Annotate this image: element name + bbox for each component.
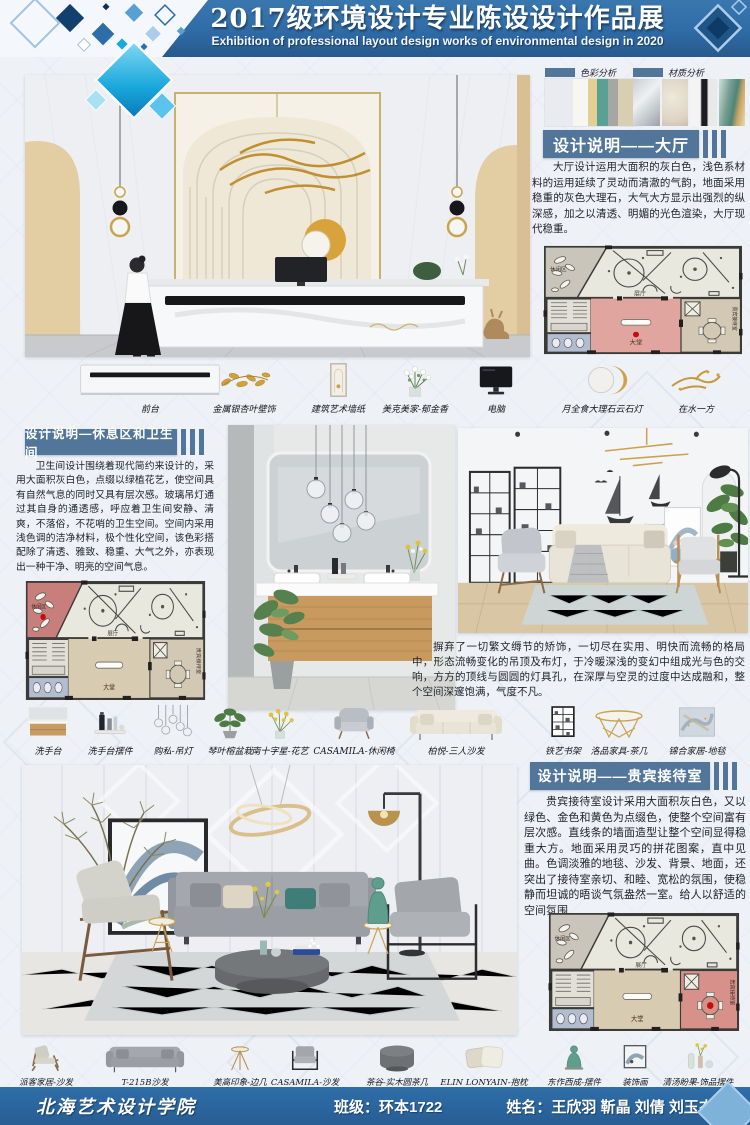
banner-bars: [714, 762, 737, 790]
hall-description: 大厅设计运用大面积的灰白色，浅色系材料的运用延续了灵动而清澈的气韵，地面采用稳重…: [532, 160, 745, 240]
vase-ornaments-icon: [650, 1040, 746, 1074]
item-casamila-sofa: CASAMILA-沙发: [258, 1040, 352, 1088]
pillows-icon: [436, 1040, 532, 1074]
poster-header: 2017级环境设计专业陈设设计作品展 Exhibition of profess…: [0, 0, 750, 57]
student-names: 姓名：王欣羽 靳晶 刘倩 刘玉杰: [506, 1096, 714, 1117]
item-label: 月全食大理石云石灯: [552, 402, 652, 415]
item-vase-ornaments: 清汤盼果-饰品摆件: [650, 1040, 746, 1088]
item-ginkgo-wall-decor: 金属银杏叶壁饰: [196, 360, 292, 415]
section-title: 设计说明——贵宾接待室: [538, 766, 703, 786]
poster-root: 2017级环境设计专业陈设设计作品展 Exhibition of profess…: [0, 0, 750, 1125]
material-swatch-metal: [633, 79, 660, 126]
class-info: 班级：环本1722: [334, 1096, 442, 1117]
wire-coffee-table-icon: [576, 702, 662, 742]
three-seat-sofa-icon: [402, 702, 510, 742]
label-bar: [633, 68, 663, 77]
item-lounge-chair: CASAMILA-休闲椅: [304, 702, 404, 757]
poster-title: 2017级环境设计专业陈设设计作品展: [195, 4, 680, 34]
gray-sofa-icon: [96, 1040, 194, 1074]
item-sculpture-ornament: 东作西成-摆件: [530, 1040, 618, 1088]
vip-room-photo: [22, 765, 517, 1035]
header-diamond-decoration-left: [0, 0, 215, 57]
color-swatch: [608, 79, 618, 126]
ginkgo-leaves-icon: [196, 360, 292, 400]
item-marble-moon-lamp: 月全食大理石云石灯: [552, 360, 652, 415]
color-analysis-label: 色彩分析: [545, 66, 616, 79]
color-analysis-swatches: [545, 79, 637, 126]
banner-bars: [181, 429, 204, 455]
carpet-icon: [654, 702, 740, 742]
item-driftwood-decor: 在水一方: [654, 360, 738, 415]
color-swatch: [588, 79, 597, 126]
item-round-coffee-table: 茶谷-实木圆茶几: [350, 1040, 444, 1088]
color-swatch: [545, 79, 573, 126]
material-swatch-frame: [690, 79, 717, 126]
vip-description: 贵宾接待室设计采用大面积灰白色，又以绿色、金色和黄色为点缀色，使整个空间富有层次…: [524, 794, 746, 908]
material-analysis-swatches: [633, 79, 745, 126]
item-art-wallpaper: 建筑艺术墙纸: [300, 360, 376, 415]
wallpaper-panel-icon: [300, 360, 376, 400]
sculpture-icon: [530, 1040, 618, 1074]
item-label: 电脑: [458, 402, 534, 415]
item-tulip: 美克美家-郁金香: [373, 360, 457, 415]
item-label: 建筑艺术墙纸: [300, 402, 376, 415]
header-diamond-decoration-right: [688, 0, 750, 57]
item-label: 美克美家-郁金香: [373, 402, 457, 415]
item-t215b-sofa: T-215B沙发: [96, 1040, 194, 1088]
poster-subtitle: Exhibition of professional layout design…: [195, 34, 680, 49]
section-banner-rest: 设计说明—休息区和卫生间: [25, 429, 177, 455]
item-carpet: 锦合家居-地毯: [654, 702, 740, 757]
section-title: 设计说明——大厅: [553, 132, 689, 156]
school-name: 北海艺术设计学院: [36, 1093, 196, 1119]
tulip-bouquet-icon: [373, 360, 457, 400]
item-label: CASAMILA-休闲椅: [304, 744, 404, 757]
item-label: 在水一方: [654, 402, 738, 415]
living-room-note: 摒弃了一切繁文缛节的矫饰，一切尽在实用、明快而流畅的格局中，形态流畅变化的吊顶及…: [412, 640, 745, 702]
item-pillow: ELIN LONYAIN-抱枕: [436, 1040, 532, 1088]
item-label: 柏悦-三人沙发: [402, 744, 510, 757]
item-guest-sofa: 派客家居-沙发: [6, 1040, 86, 1088]
section-banner-hall: 设计说明——大厅: [543, 130, 699, 158]
rest-description: 卫生间设计围绕着现代简约来设计的，采用大面积灰白色，点缀以绿植花艺，使空间具有自…: [16, 460, 214, 578]
floor-plan-hall-highlight: [543, 245, 743, 355]
item-label: 锦合家居-地毯: [654, 744, 740, 757]
item-computer: 电脑: [458, 360, 534, 415]
label-bar: [545, 68, 575, 77]
lobby-photo: [25, 75, 530, 357]
floor-plan-leisure-highlight: [25, 580, 206, 701]
wood-frame-chair-icon: [6, 1040, 86, 1074]
material-swatch-fabric: [662, 79, 689, 126]
banner-bars: [703, 130, 726, 158]
section-banner-vip: 设计说明——贵宾接待室: [530, 762, 710, 790]
item-three-seat-sofa: 柏悦-三人沙发: [402, 702, 510, 757]
item-label: 金属银杏叶壁饰: [196, 402, 292, 415]
section-title: 设计说明—休息区和卫生间: [25, 423, 177, 461]
color-swatch: [597, 79, 607, 126]
item-label: 洛品家具-茶几: [576, 744, 662, 757]
metal-frame-chair-icon: [258, 1040, 352, 1074]
material-swatch-curtain: [719, 79, 746, 126]
round-coffee-table-icon: [350, 1040, 444, 1074]
color-swatch: [573, 79, 589, 126]
material-analysis-label: 材质分析: [633, 66, 704, 79]
computer-monitor-icon: [458, 360, 534, 400]
item-coffee-table: 洛品家具-茶几: [576, 702, 662, 757]
living-room-photo: [458, 428, 748, 633]
floor-plan-vip-highlight: [548, 912, 740, 1032]
poster-footer: 北海艺术设计学院 班级：环本1722 姓名：王欣羽 靳晶 刘倩 刘玉杰: [0, 1087, 750, 1125]
marble-moon-lamp-icon: [552, 360, 652, 400]
lounge-chair-icon: [304, 702, 404, 742]
driftwood-decor-icon: [654, 360, 738, 400]
